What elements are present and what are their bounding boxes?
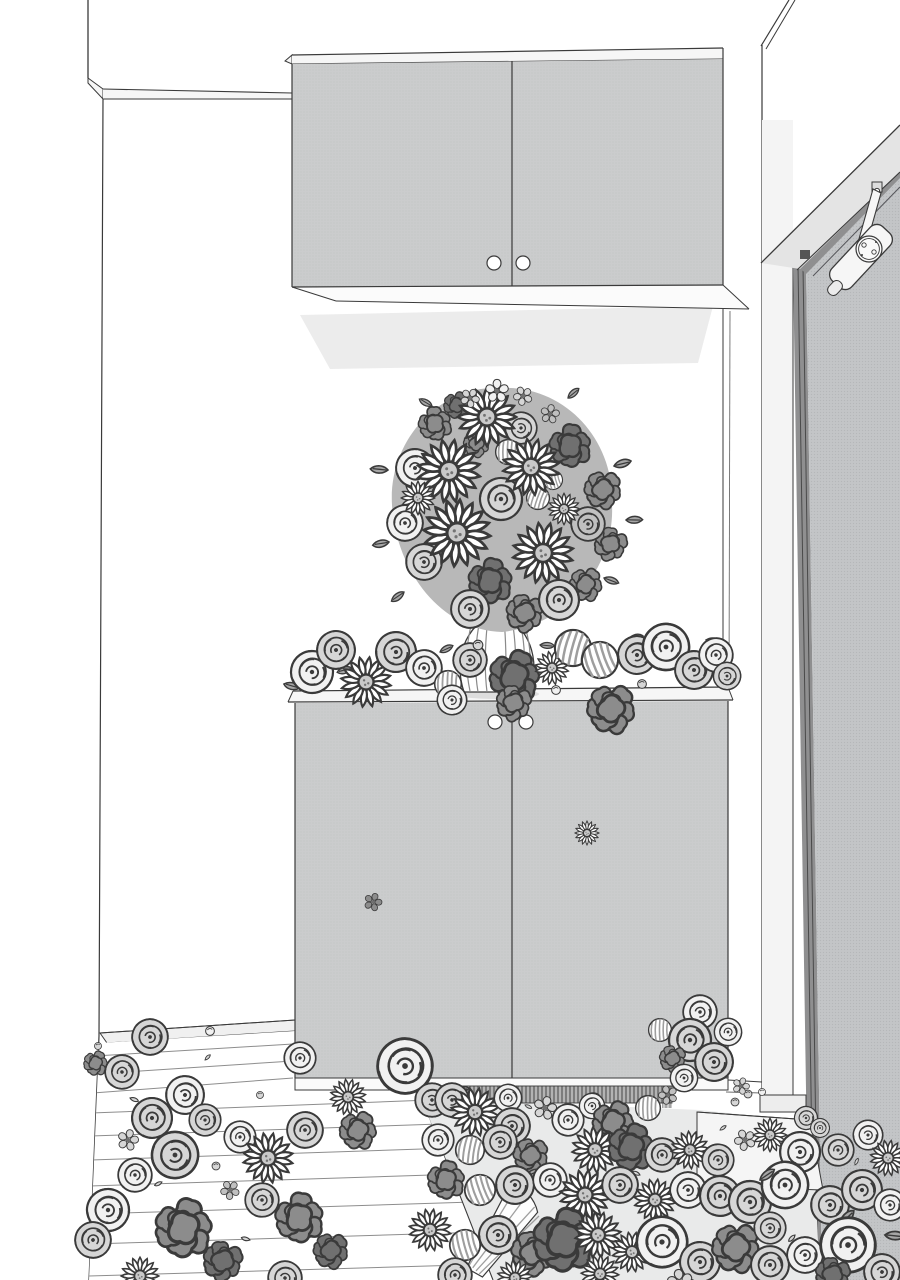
- shoe-cabinet-knob-left: [488, 715, 502, 729]
- entryway-illustration: Black-and-white manga illustration: apar…: [0, 0, 900, 1280]
- upper-cabinet-knob-left: [487, 256, 501, 270]
- shoe-cabinet: [288, 687, 733, 1103]
- upper-cabinet-knob-right: [516, 256, 530, 270]
- latch-plate: [800, 250, 810, 259]
- upper-cabinet: [285, 48, 749, 309]
- door-decal-daisy: [575, 821, 599, 845]
- shoe-cabinet-knob-right: [519, 715, 533, 729]
- under-cabinet-shadow: [300, 306, 713, 369]
- manga-page: Black-and-white manga illustration: apar…: [0, 0, 900, 1280]
- door-jamb: [762, 120, 793, 1106]
- closer-plate: [856, 236, 882, 262]
